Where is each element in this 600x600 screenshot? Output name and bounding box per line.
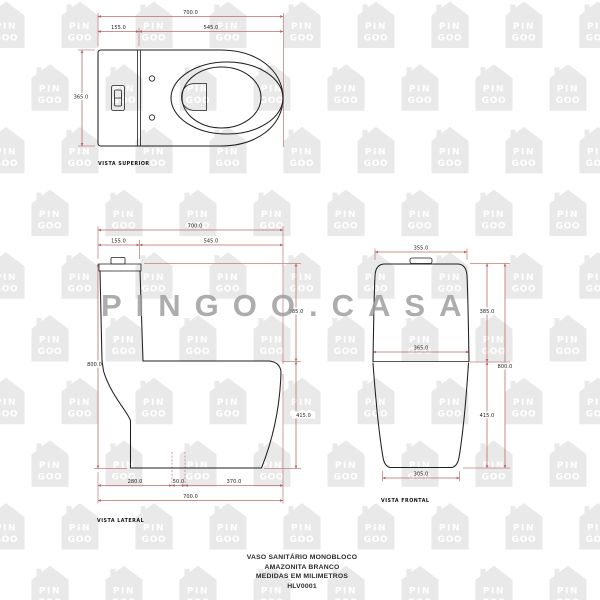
seat-hinge-bolt xyxy=(149,115,154,120)
dim-label-trap-to-front: 370.0 xyxy=(227,479,242,485)
dim-label-base-width: 305.0 xyxy=(414,472,429,478)
bowl-water-area xyxy=(182,84,207,111)
dim-label-tank-depth: 155.0 xyxy=(111,239,126,245)
top-view-dimensions: 700.0 155.0 545.0 365.0 xyxy=(70,10,284,147)
pingoo-casa-watermark-text: PINGOO.CASA xyxy=(101,290,475,321)
product-title: VASO SANITÁRIO MONOBLOCO xyxy=(152,553,452,563)
flush-button-side-view xyxy=(111,258,125,265)
dim-label-seat-depth: 545.0 xyxy=(204,25,219,31)
product-code: HLV0001 xyxy=(152,582,452,592)
product-color: AMAZONITA BRANCO xyxy=(152,563,452,573)
dim-label-seat-depth: 545.0 xyxy=(204,239,219,245)
bowl-profile-side-view xyxy=(102,361,281,468)
dim-label-trap-width: 50.0 xyxy=(173,479,185,485)
dim-label-tank-height: 385.0 xyxy=(480,309,495,315)
view-superior: 700.0 155.0 545.0 365.0 VISTA SUPERIOR xyxy=(70,10,284,167)
bowl-opening xyxy=(182,67,261,128)
dim-label-bowl-height: 415.0 xyxy=(480,413,495,419)
view-frontal-label: VISTA FRONTAL xyxy=(381,498,429,504)
side-view-dimensions: 700.0 155.0 545.0 800.0 385.0 415.0 280.… xyxy=(83,224,315,504)
dim-label-tank-width: 355.0 xyxy=(414,246,429,252)
seat-outer-edge xyxy=(171,62,283,134)
view-lateral-label: VISTA LATERAL xyxy=(97,518,144,524)
dim-label-total-depth: 700.0 xyxy=(188,224,203,230)
title-block: VASO SANITÁRIO MONOBLOCO AMAZONITA BRANC… xyxy=(152,553,452,591)
seat-hinge-bolt xyxy=(149,76,154,81)
dim-label-total-height: 800.0 xyxy=(87,362,102,368)
units-note: MEDIDAS EM MILIMETROS xyxy=(152,572,452,582)
dim-label-total-depth-bottom: 700.0 xyxy=(183,494,198,500)
dim-label-bowl-width: 365.0 xyxy=(414,346,429,352)
flush-button-front-view xyxy=(410,258,432,264)
dim-label-total-height: 800.0 xyxy=(498,364,513,370)
view-frontal: 355.0 365.0 305.0 385.0 415.0 800.0 VIST… xyxy=(373,246,517,505)
view-lateral: 700.0 155.0 545.0 800.0 385.0 415.0 280.… xyxy=(83,224,315,525)
pedestal-front-view xyxy=(373,363,469,468)
top-view-body-outline xyxy=(98,50,283,146)
top-view-tank-seam xyxy=(138,50,141,146)
tank-lid-side-view xyxy=(99,264,141,271)
dim-label-total-depth: 700.0 xyxy=(183,10,198,16)
dim-label-rear-to-trap: 280.0 xyxy=(128,479,143,485)
dim-label-tank-depth: 155.0 xyxy=(111,25,126,31)
view-superior-label: VISTA SUPERIOR xyxy=(98,161,150,167)
technical-drawing-page: PINGOOPINGOOPINGOOPINGOOPINGOOPINGOOPING… xyxy=(0,0,600,600)
dim-label-bowl-height: 415.0 xyxy=(296,413,311,419)
front-view-dimensions: 355.0 365.0 305.0 385.0 415.0 800.0 xyxy=(373,246,517,482)
dim-label-width: 365.0 xyxy=(74,94,89,100)
